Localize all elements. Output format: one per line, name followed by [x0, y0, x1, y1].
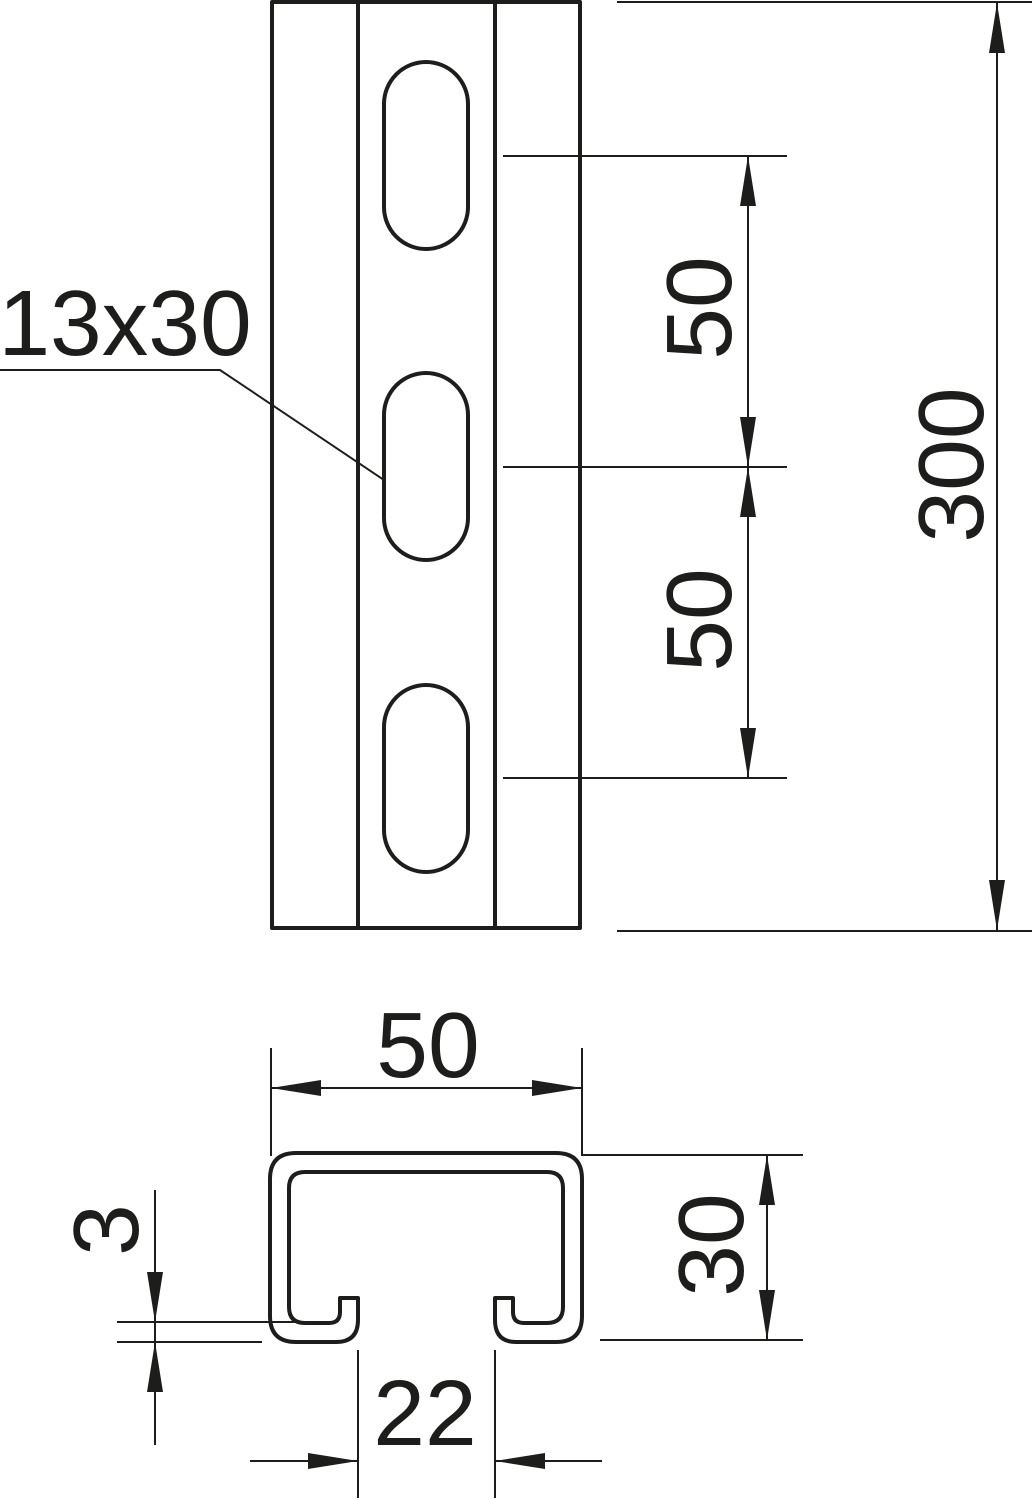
arrowhead-down-icon [740, 728, 756, 778]
arrowhead-down-icon [147, 1272, 163, 1322]
dimension-slot-opening: 22 [250, 1350, 602, 1498]
channel-profile-outline [270, 1153, 582, 1342]
dim-label-total-length: 300 [899, 387, 1003, 542]
slot-size-label: 13x30 [0, 271, 252, 375]
dim-label-slot-spacing-bottom: 50 [647, 568, 751, 671]
arrowhead-down-icon [989, 880, 1005, 930]
slot-hole-2 [384, 373, 468, 560]
arrowhead-up-icon [989, 3, 1005, 53]
cross-section-view: 50 30 3 [54, 993, 803, 1498]
arrowhead-left-icon [495, 1453, 545, 1469]
arrowhead-left-icon [271, 1080, 321, 1096]
slot-hole-1 [384, 62, 468, 249]
dim-label-slot-opening: 22 [373, 1361, 476, 1465]
slot-hole-3 [384, 685, 468, 872]
dim-label-profile-width: 50 [376, 993, 479, 1097]
arrowhead-up-icon [740, 467, 756, 517]
profile-rail-drawing: 13x30 50 50 300 [0, 0, 1035, 1500]
technical-drawing-canvas: 13x30 50 50 300 [0, 0, 1035, 1500]
front-view: 13x30 50 50 300 [0, 2, 1032, 931]
arrowhead-up-icon [740, 156, 756, 206]
dimension-profile-width: 50 [271, 993, 582, 1156]
arrowhead-down-icon [740, 417, 756, 467]
arrowhead-up-icon [147, 1342, 163, 1392]
arrowhead-right-icon [532, 1080, 582, 1096]
dim-label-wall-thickness: 3 [54, 1204, 158, 1256]
arrowhead-right-icon [308, 1453, 358, 1469]
dim-label-slot-spacing-top: 50 [647, 256, 751, 359]
dimension-profile-height: 30 [582, 1155, 803, 1340]
dim-label-profile-height: 30 [659, 1193, 763, 1296]
